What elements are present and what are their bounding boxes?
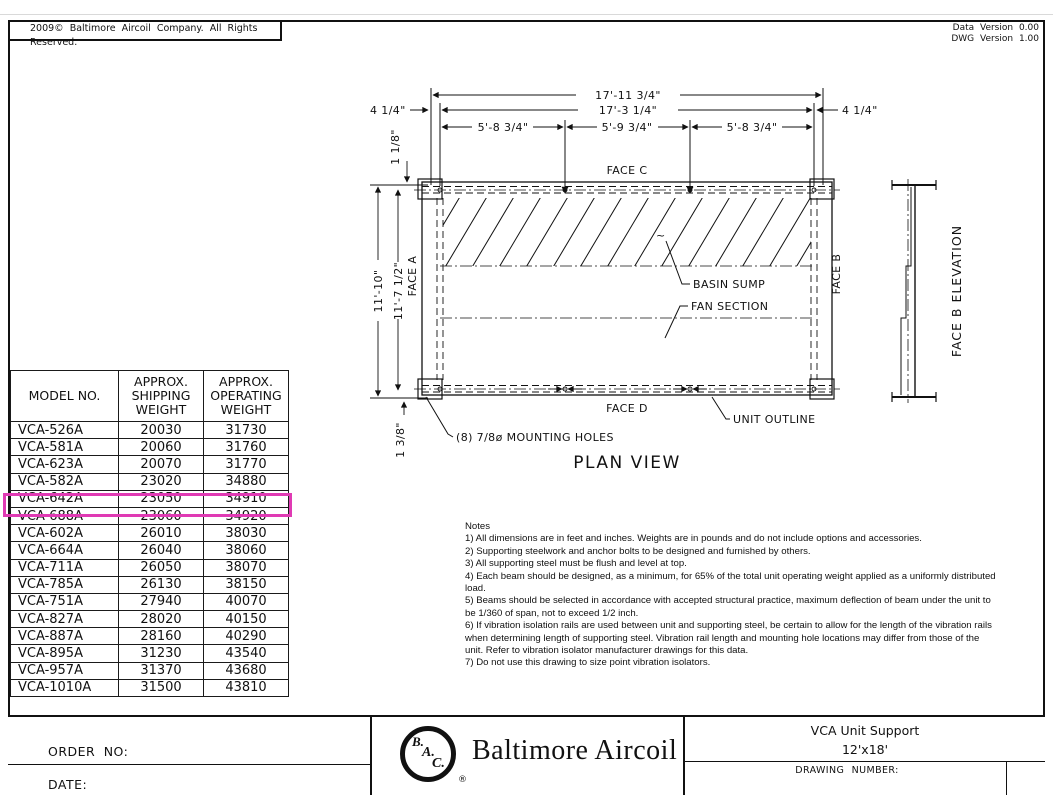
centerlines	[414, 190, 840, 389]
notes-block: Notes 1) All dimensions are in feet and …	[465, 521, 997, 670]
copyright-box: 2009© Baltimore Aircoil Company. All Rig…	[8, 20, 282, 41]
table-row: VCA-582A2302034880	[11, 473, 289, 490]
table-row: VCA-711A2605038070	[11, 559, 289, 576]
dim-edge-top: 1 1/8"	[389, 129, 402, 165]
table-row: VCA-785A2613038150	[11, 576, 289, 593]
weight-table-header-row: MODEL NO. APPROX. SHIPPING WEIGHT APPROX…	[11, 371, 289, 422]
hidden-lines	[422, 187, 832, 393]
note-4: 4) Each beam should be designed, as a mi…	[465, 571, 997, 596]
label-face-b: FACE B	[830, 254, 843, 295]
dim-edge-bottom: 1 3/8"	[394, 422, 407, 458]
dim-offset-right: 4 1/4"	[842, 104, 878, 117]
basin-sump-hatch	[390, 195, 839, 269]
cell-model: VCA-957A	[11, 662, 119, 679]
bac-logo: B. A. C.	[400, 726, 456, 782]
face-b-elevation	[892, 179, 936, 403]
dim-overall-depth: 11'-10"	[372, 270, 385, 313]
title-block: ORDER NO: DATE: B. A. C. ® Baltimore Air…	[8, 715, 1045, 795]
table-row: VCA-827A2802040150	[11, 611, 289, 628]
cell-shipping: 31230	[119, 645, 204, 662]
table-row: VCA-581A2006031760	[11, 439, 289, 456]
dwg-version: DWG Version 1.00	[951, 34, 1039, 45]
drawing-info-section: VCA Unit Support 12'x18' DRAWING NUMBER:	[683, 717, 1045, 795]
label-fan-section: FAN SECTION	[691, 300, 768, 313]
label-face-a: FACE A	[406, 256, 419, 297]
col-header-model: MODEL NO.	[11, 371, 119, 422]
cell-model: VCA-827A	[11, 611, 119, 628]
cell-model: VCA-785A	[11, 576, 119, 593]
cell-operating: 38150	[204, 576, 289, 593]
cell-shipping: 23020	[119, 473, 204, 490]
logo-letter-c: C.	[432, 756, 445, 772]
table-row: VCA-623A2007031770	[11, 456, 289, 473]
elevation-title: FACE B ELEVATION	[949, 225, 964, 357]
cell-operating: 43540	[204, 645, 289, 662]
cell-model: VCA-602A	[11, 525, 119, 542]
date-field: DATE:	[8, 765, 370, 797]
cell-shipping: 20060	[119, 439, 204, 456]
cell-shipping: 27940	[119, 593, 204, 610]
extension-lines	[370, 88, 823, 398]
weight-table: MODEL NO. APPROX. SHIPPING WEIGHT APPROX…	[10, 370, 289, 697]
table-row: VCA-957A3137043680	[11, 662, 289, 679]
product-title-cell: VCA Unit Support 12'x18'	[685, 717, 1045, 762]
cell-shipping: 26130	[119, 576, 204, 593]
product-size: 12'x18'	[685, 740, 1045, 759]
cell-operating: 38070	[204, 559, 289, 576]
order-date-section: ORDER NO: DATE:	[8, 717, 372, 795]
cell-operating: 43810	[204, 679, 289, 696]
cell-model: VCA-581A	[11, 439, 119, 456]
note-2: 2) Supporting steelwork and anchor bolts…	[465, 546, 997, 558]
scan-artifact-line	[0, 14, 1053, 15]
brand-section: B. A. C. ® Baltimore Aircoil	[372, 717, 683, 795]
version-block: Data Version 0.00 DWG Version 1.00	[951, 23, 1039, 45]
cell-model: VCA-582A	[11, 473, 119, 490]
cell-operating: 40150	[204, 611, 289, 628]
table-row: VCA-1010A3150043810	[11, 679, 289, 696]
cell-operating: 31770	[204, 456, 289, 473]
data-version: Data Version 0.00	[951, 23, 1039, 34]
cell-shipping: 26010	[119, 525, 204, 542]
cell-model: VCA-623A	[11, 456, 119, 473]
leader-lines	[426, 241, 730, 437]
cell-operating: 40290	[204, 628, 289, 645]
cell-model: VCA-895A	[11, 645, 119, 662]
dim-span-mid: 5'-9 3/4"	[602, 121, 653, 134]
cell-operating: 43680	[204, 662, 289, 679]
label-basin-sump: BASIN SUMP	[693, 278, 765, 291]
cell-model: VCA-526A	[11, 422, 119, 439]
plan-view-drawing: 17'-11 3/4" 17'-3 1/4" 5'-8 3/4" 5'-9 3/…	[360, 55, 1053, 525]
cell-shipping: 31370	[119, 662, 204, 679]
cell-shipping: 26040	[119, 542, 204, 559]
date-label: DATE:	[48, 777, 87, 792]
order-no-label: ORDER NO:	[48, 744, 128, 759]
table-row: VCA-895A3123043540	[11, 645, 289, 662]
cell-operating: 40070	[204, 593, 289, 610]
cell-model: VCA-664A	[11, 542, 119, 559]
label-face-c: FACE C	[607, 164, 648, 177]
col-header-shipping: APPROX. SHIPPING WEIGHT	[119, 371, 204, 422]
dim-bolt-depth: 11'-7 1/2"	[392, 262, 405, 320]
col-header-operating: APPROX. OPERATING WEIGHT	[204, 371, 289, 422]
label-unit-outline: UNIT OUTLINE	[733, 413, 816, 426]
unit-outline	[418, 179, 834, 399]
dim-overall-width: 17'-11 3/4"	[595, 89, 661, 102]
notes-title: Notes	[465, 521, 997, 533]
table-row: VCA-751A2794040070	[11, 593, 289, 610]
note-7: 7) Do not use this drawing to size point…	[465, 657, 997, 669]
table-row: VCA-602A2601038030	[11, 525, 289, 542]
note-5: 5) Beams should be selected in accordanc…	[465, 595, 997, 620]
cell-shipping: 28160	[119, 628, 204, 645]
cell-operating: 38060	[204, 542, 289, 559]
drawing-number-cell: DRAWING NUMBER:	[685, 762, 1045, 795]
order-no-field: ORDER NO:	[8, 717, 370, 765]
note-3: 3) All supporting steel must be flush an…	[465, 558, 997, 570]
highlight-box-vca-642a	[3, 493, 292, 517]
cell-operating: 38030	[204, 525, 289, 542]
weight-table-body: VCA-526A2003031730VCA-581A2006031760VCA-…	[11, 422, 289, 697]
note-6: 6) If vibration isolation rails are used…	[465, 620, 997, 657]
cell-operating: 34880	[204, 473, 289, 490]
registered-mark: ®	[458, 775, 467, 785]
drawing-number-end-box	[1006, 762, 1045, 795]
cell-shipping: 20030	[119, 422, 204, 439]
dimension-lines	[378, 95, 838, 415]
basin-squiggle: ~	[656, 229, 666, 242]
cell-shipping: 28020	[119, 611, 204, 628]
label-mounting-holes: (8) 7/8ø MOUNTING HOLES	[456, 431, 614, 444]
company-name: Baltimore Aircoil	[472, 735, 677, 767]
cell-shipping: 31500	[119, 679, 204, 696]
cell-operating: 31760	[204, 439, 289, 456]
note-1: 1) All dimensions are in feet and inches…	[465, 533, 997, 545]
cell-shipping: 26050	[119, 559, 204, 576]
plan-view-title: PLAN VIEW	[573, 453, 681, 473]
dim-offset-left: 4 1/4"	[370, 104, 406, 117]
label-face-d: FACE D	[606, 402, 648, 415]
cell-shipping: 20070	[119, 456, 204, 473]
cell-model: VCA-887A	[11, 628, 119, 645]
table-row: VCA-664A2604038060	[11, 542, 289, 559]
cell-model: VCA-1010A	[11, 679, 119, 696]
dim-span-right: 5'-8 3/4"	[727, 121, 778, 134]
drawing-sheet: 2009© Baltimore Aircoil Company. All Rig…	[0, 0, 1053, 811]
table-row: VCA-887A2816040290	[11, 628, 289, 645]
cell-model: VCA-711A	[11, 559, 119, 576]
dim-span-left: 5'-8 3/4"	[478, 121, 529, 134]
table-row: VCA-526A2003031730	[11, 422, 289, 439]
cell-operating: 31730	[204, 422, 289, 439]
cell-model: VCA-751A	[11, 593, 119, 610]
product-title: VCA Unit Support	[685, 721, 1045, 740]
drawing-number-label: DRAWING NUMBER:	[685, 765, 1009, 776]
dim-bolt-width: 17'-3 1/4"	[599, 104, 657, 117]
